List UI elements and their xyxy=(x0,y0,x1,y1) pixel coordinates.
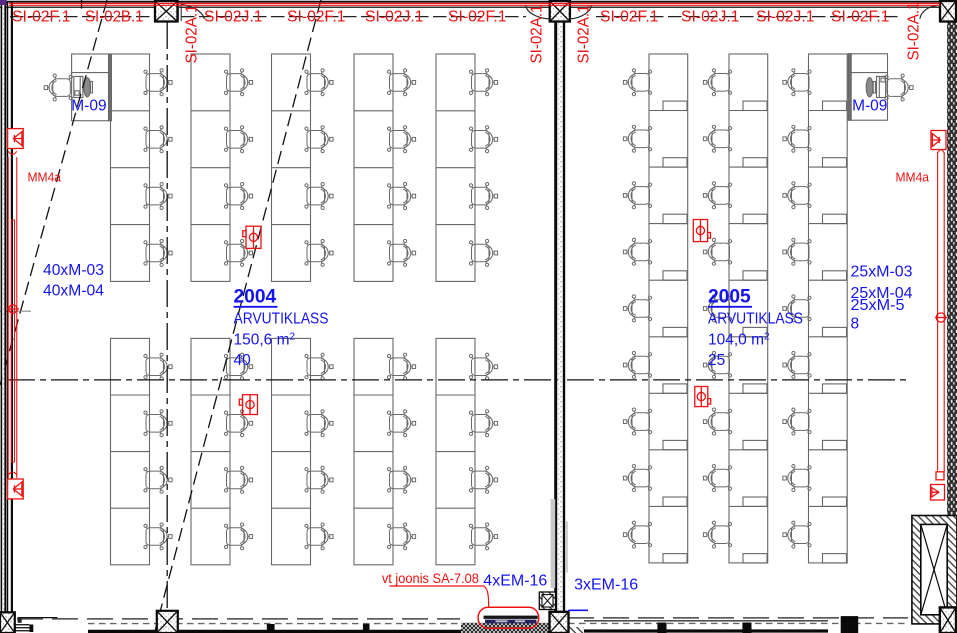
svg-text:2004: 2004 xyxy=(234,286,277,307)
svg-text:M-09: M-09 xyxy=(71,98,106,115)
svg-text:25xM-03: 25xM-03 xyxy=(851,264,913,281)
svg-text:SI-02F.1: SI-02F.1 xyxy=(831,9,890,26)
svg-text:40xM-03: 40xM-03 xyxy=(43,262,104,279)
svg-text:MM4a: MM4a xyxy=(896,170,930,184)
svg-text:SI-02J.1: SI-02J.1 xyxy=(365,9,424,26)
svg-text:vt joonis SA-7.08: vt joonis SA-7.08 xyxy=(382,571,479,586)
svg-text:SI-02F.1: SI-02F.1 xyxy=(600,9,659,26)
svg-text:SI-02F.1: SI-02F.1 xyxy=(12,9,71,26)
svg-text:SI-02A.1: SI-02A.1 xyxy=(906,1,923,60)
svg-text:SI-02J.1: SI-02J.1 xyxy=(681,9,740,26)
svg-text:SI-02A.1: SI-02A.1 xyxy=(576,4,593,63)
svg-text:150,6 m2: 150,6 m2 xyxy=(234,332,296,349)
svg-text:2005: 2005 xyxy=(708,286,751,307)
svg-text:MM4a: MM4a xyxy=(28,170,62,184)
svg-text:4xEM-16: 4xEM-16 xyxy=(483,573,547,590)
svg-text:ARVUTIKLASS: ARVUTIKLASS xyxy=(234,311,329,328)
svg-text:104,0 m2: 104,0 m2 xyxy=(708,332,770,349)
svg-text:40: 40 xyxy=(234,352,252,369)
svg-text:25: 25 xyxy=(708,352,725,369)
svg-text:SI-02J.1: SI-02J.1 xyxy=(756,9,815,26)
svg-text:8: 8 xyxy=(851,316,860,333)
svg-text:M-09: M-09 xyxy=(852,98,887,115)
svg-text:25xM-5: 25xM-5 xyxy=(851,297,905,314)
svg-text:SI-02J.1: SI-02J.1 xyxy=(204,9,263,26)
svg-text:SI-02B.1: SI-02B.1 xyxy=(85,9,144,26)
svg-text:SI-02A.1: SI-02A.1 xyxy=(184,4,201,63)
svg-text:SI-02F.1: SI-02F.1 xyxy=(448,9,507,26)
svg-text:ARVUTIKLASS: ARVUTIKLASS xyxy=(708,311,803,328)
svg-text:SI-02A.1: SI-02A.1 xyxy=(529,4,546,63)
svg-text:SI-02F.1: SI-02F.1 xyxy=(287,9,346,26)
svg-text:3xEM-16: 3xEM-16 xyxy=(574,577,638,594)
svg-text:40xM-04: 40xM-04 xyxy=(43,282,104,299)
